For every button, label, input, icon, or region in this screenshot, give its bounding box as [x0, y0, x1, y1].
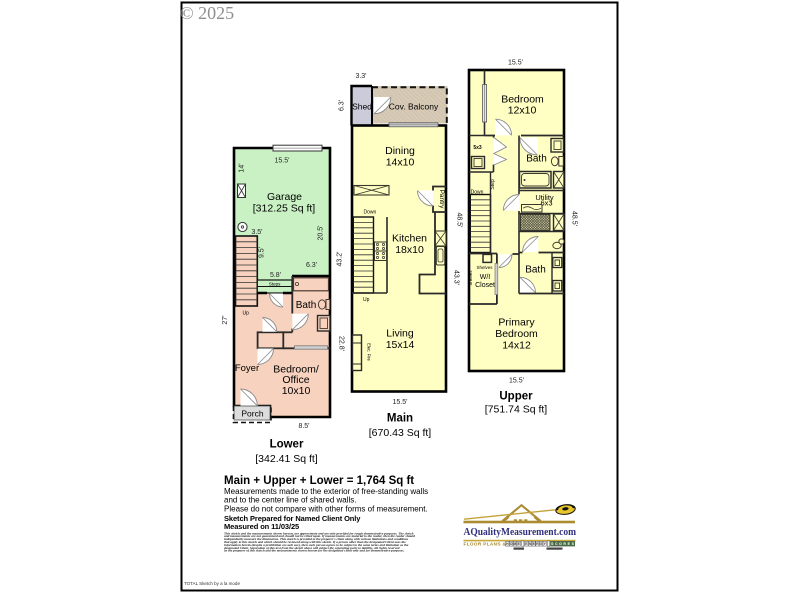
svg-text:Main + Upper + Lower = 1,764 S: Main + Upper + Lower = 1,764 Sq ft — [224, 475, 414, 487]
svg-text:14x12: 14x12 — [502, 340, 531, 352]
svg-text:[670.43 Sq ft]: [670.43 Sq ft] — [369, 427, 432, 439]
svg-text:Foyer: Foyer — [235, 363, 259, 374]
svg-text:27': 27' — [222, 315, 229, 324]
svg-text:O: O — [510, 542, 513, 546]
svg-text:W/I: W/I — [480, 274, 491, 281]
svg-text:Pantry: Pantry — [438, 190, 445, 210]
svg-text:Living: Living — [386, 328, 414, 340]
svg-text:AQualityMeasurement.com: AQualityMeasurement.com — [464, 527, 577, 538]
svg-text:Dining: Dining — [385, 145, 415, 157]
svg-text:43.2': 43.2' — [337, 252, 344, 267]
svg-text:and to the center line of shar: and to the center line of shared walls. — [224, 496, 357, 505]
svg-text:9.5': 9.5' — [259, 247, 266, 258]
svg-text:20.5': 20.5' — [318, 226, 325, 241]
svg-text:48.5': 48.5' — [456, 213, 463, 228]
svg-text:Bath: Bath — [526, 154, 547, 165]
svg-text:8.5': 8.5' — [298, 423, 309, 430]
svg-text:Primary: Primary — [498, 317, 535, 329]
svg-text:Main: Main — [387, 413, 413, 425]
svg-text:Upper: Upper — [499, 391, 533, 403]
svg-text:Elec. Fire: Elec. Fire — [367, 343, 372, 361]
svg-text:12x10: 12x10 — [508, 105, 537, 117]
svg-text:Bath: Bath — [525, 265, 546, 276]
svg-text:3.3': 3.3' — [355, 73, 366, 80]
svg-text:Bedroom: Bedroom — [495, 328, 538, 340]
svg-text:Up: Up — [363, 297, 370, 303]
svg-text:Up: Up — [242, 311, 249, 317]
svg-text:G: G — [540, 542, 543, 546]
svg-text:5.8': 5.8' — [270, 272, 281, 279]
svg-text:Lower: Lower — [270, 439, 304, 451]
svg-text:[751.74 Sq ft]: [751.74 Sq ft] — [485, 404, 548, 416]
svg-text:[342.41 Sq ft]: [342.41 Sq ft] — [255, 453, 318, 465]
svg-text:Down: Down — [364, 210, 377, 216]
svg-text:6.3': 6.3' — [339, 100, 346, 111]
svg-text:Measured on 11/03/25: Measured on 11/03/25 — [224, 522, 299, 531]
svg-text:TOTAL Sketch by a la mode: TOTAL Sketch by a la mode — [184, 581, 240, 586]
svg-text:15.5': 15.5' — [275, 158, 290, 165]
svg-text:M: M — [513, 542, 516, 546]
svg-text:15.5': 15.5' — [508, 60, 523, 67]
svg-text:Cov. Balcony: Cov. Balcony — [389, 102, 439, 112]
svg-text:22.8': 22.8' — [338, 336, 345, 351]
svg-text:Shelves: Shelves — [476, 265, 493, 270]
svg-text:10x10: 10x10 — [282, 385, 311, 397]
svg-text:by the preparer of this sketch: by the preparer of this sketch and the m… — [224, 549, 405, 553]
svg-text:Kitchen: Kitchen — [392, 233, 427, 245]
svg-text:Closet: Closet — [475, 282, 495, 289]
svg-text:15.5': 15.5' — [509, 378, 524, 385]
svg-text:15x14: 15x14 — [386, 339, 415, 351]
svg-text:[312.25 Sq ft]: [312.25 Sq ft] — [253, 203, 316, 215]
svg-text:15.5': 15.5' — [393, 399, 408, 406]
svg-text:3.5': 3.5' — [251, 229, 262, 236]
svg-text:Shed: Shed — [352, 102, 372, 112]
svg-text:Measurements made to the exter: Measurements made to the exterior of fre… — [224, 487, 428, 496]
svg-text:FLOOR PLANS &: FLOOR PLANS & — [464, 542, 507, 547]
svg-text:43.3': 43.3' — [453, 270, 460, 285]
svg-text:Shelves: Shelves — [468, 271, 473, 286]
svg-text:Garage: Garage — [267, 191, 302, 203]
svg-text:Bath: Bath — [296, 300, 317, 311]
svg-text:© 2025: © 2025 — [180, 3, 234, 23]
svg-text:O: O — [559, 542, 562, 546]
svg-text:Please do not compare with oth: Please do not compare with other forms o… — [224, 504, 428, 513]
svg-text:14': 14' — [239, 163, 246, 172]
svg-text:48.5': 48.5' — [571, 211, 578, 226]
svg-text:18x10: 18x10 — [395, 244, 424, 256]
svg-text:Steps: Steps — [269, 281, 281, 286]
svg-text:5x3: 5x3 — [473, 145, 482, 151]
svg-text:14x10: 14x10 — [386, 157, 415, 169]
svg-text:Porch: Porch — [241, 409, 263, 419]
svg-text:6.3': 6.3' — [306, 262, 317, 269]
